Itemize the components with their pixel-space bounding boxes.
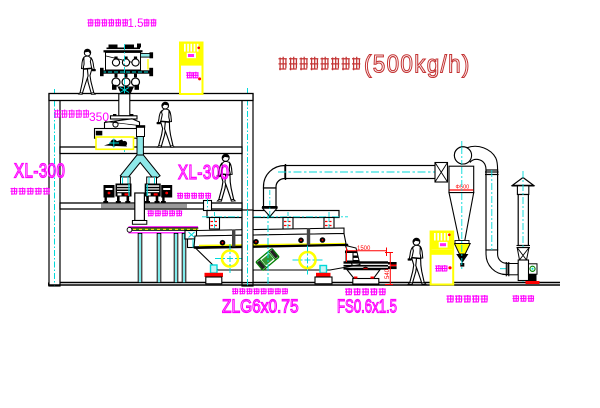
svg-text:Φ500: Φ500: [456, 184, 470, 190]
svg-text:1500: 1500: [357, 246, 371, 252]
svg-text:XL-300: XL-300: [178, 161, 229, 184]
svg-text:(500kg/h): (500kg/h): [364, 50, 471, 78]
svg-text:540: 540: [385, 268, 391, 279]
svg-text:350: 350: [89, 110, 109, 124]
svg-text:1.5: 1.5: [128, 18, 144, 30]
svg-text:ZLG6x0.75: ZLG6x0.75: [222, 295, 299, 317]
svg-text:FS0.6x1.5: FS0.6x1.5: [337, 296, 397, 317]
svg-text:XL-300: XL-300: [14, 159, 65, 182]
